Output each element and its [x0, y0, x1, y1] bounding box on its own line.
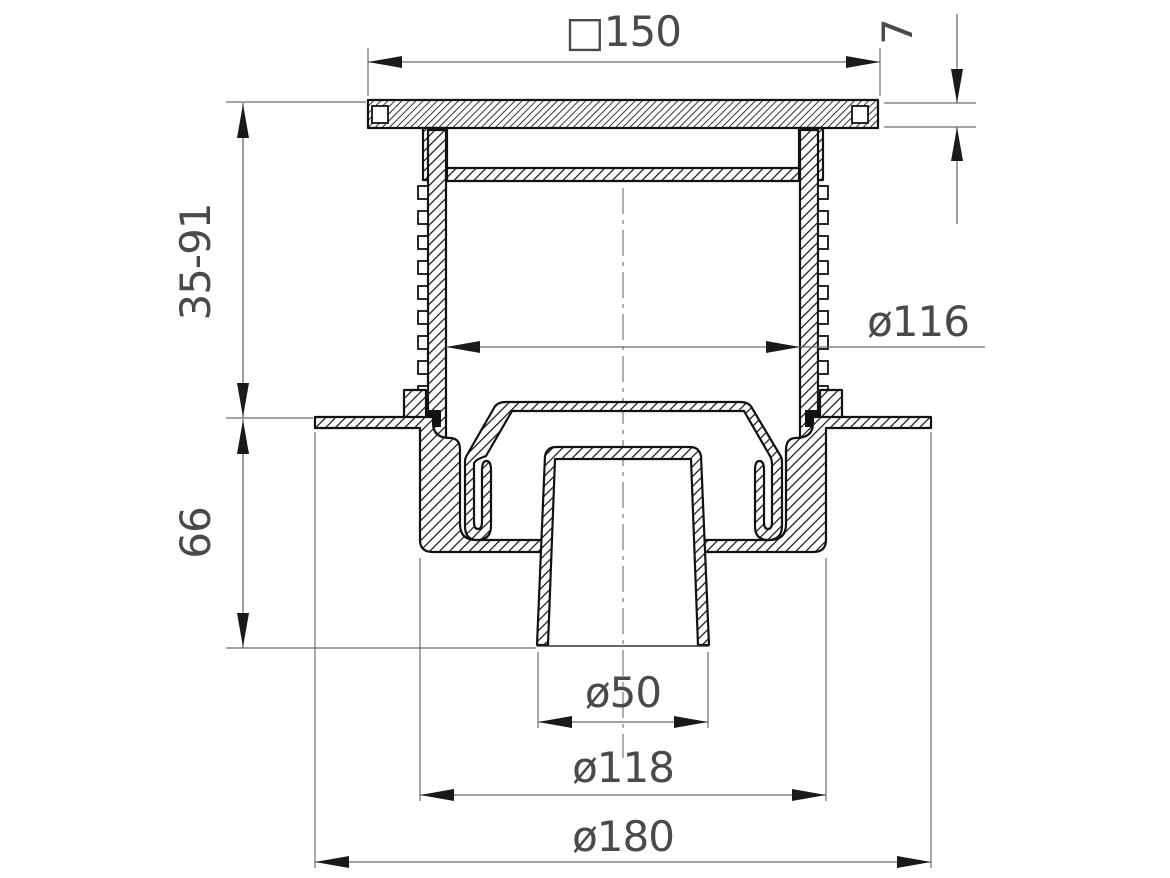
dim-label-body-diameter: ø118 — [572, 743, 674, 792]
dim-label-outlet-diameter: ø50 — [585, 668, 661, 717]
dim-label-top-width: □150 — [565, 7, 681, 56]
grate-hook-notch-right — [852, 106, 868, 123]
dim-label-riser-inner-diameter: ø116 — [867, 297, 969, 346]
riser-wall-right — [800, 130, 818, 442]
drawing-canvas: □150 7 35-91 66 — [0, 0, 1170, 878]
riser-wall-left — [428, 130, 446, 442]
dim-label-adjustable-height: 35-91 — [171, 203, 220, 320]
grate-hook-notch-left — [372, 106, 388, 123]
frame-bottom-band — [447, 168, 799, 181]
dim-label-flange-diameter: ø180 — [572, 812, 674, 861]
grate-plate — [368, 100, 878, 128]
dim-label-grate-thickness: 7 — [873, 19, 922, 45]
dim-label-trap-height: 66 — [171, 507, 220, 558]
socket-collar-left — [404, 390, 426, 418]
socket-collar-right — [820, 390, 842, 418]
floor-drain-technical-drawing: □150 7 35-91 66 — [0, 0, 1170, 878]
